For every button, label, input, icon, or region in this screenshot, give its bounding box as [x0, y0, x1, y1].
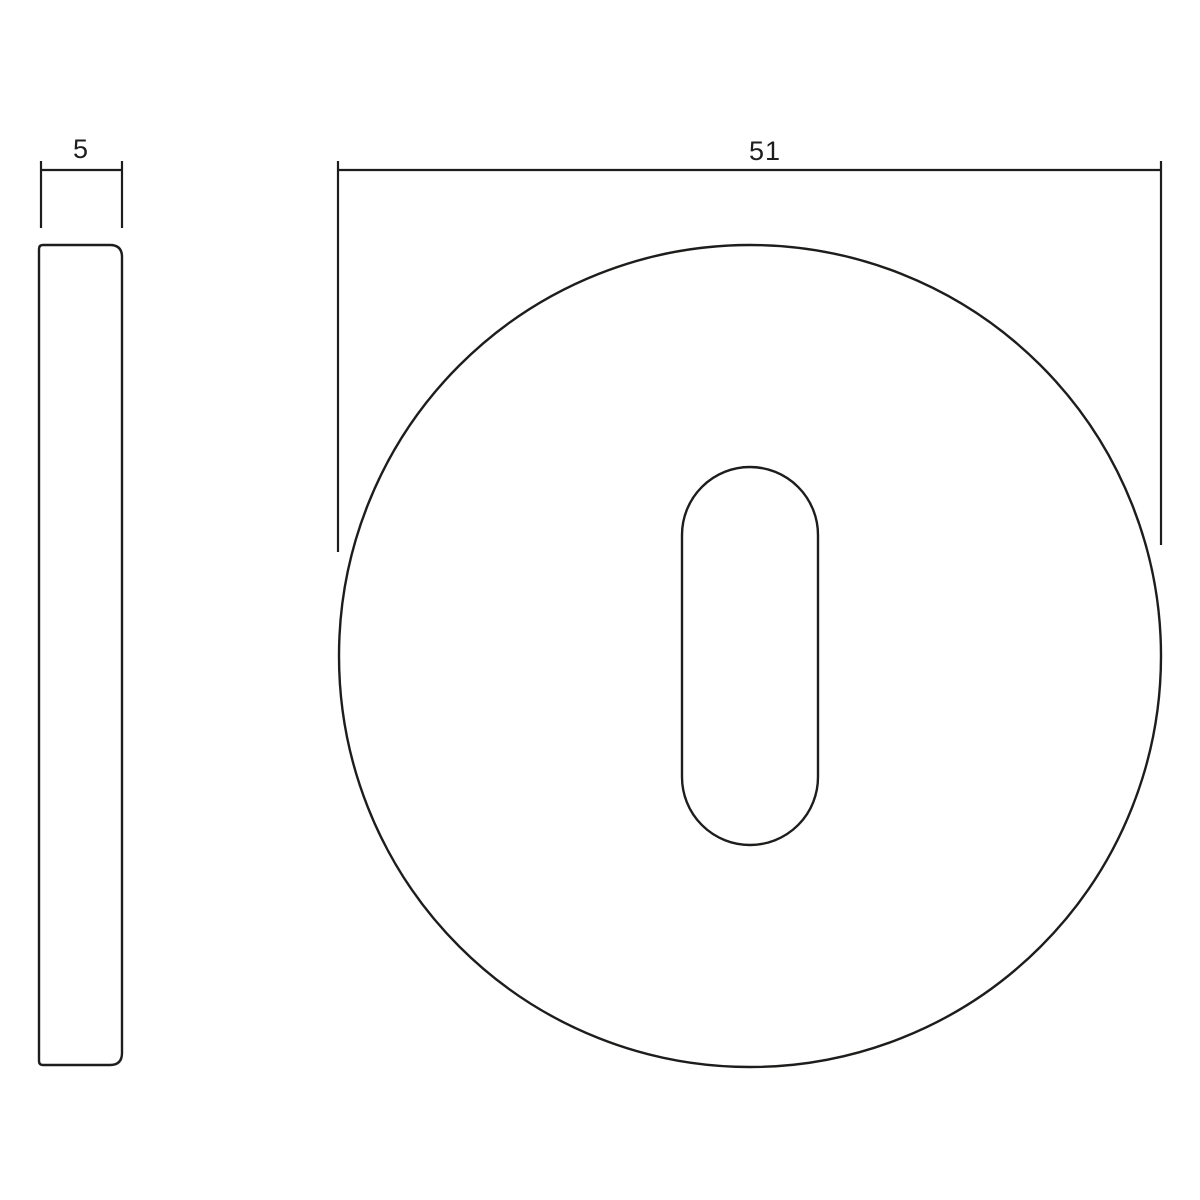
rosette-circle [339, 245, 1161, 1067]
side-view [39, 245, 122, 1065]
dimension-thickness [41, 161, 122, 228]
drawing-canvas: 5 51 [0, 0, 1200, 1200]
technical-drawing: 5 51 [0, 0, 1200, 1200]
side-view-outline [39, 245, 122, 1065]
keyhole-slot [682, 467, 818, 845]
dimension-diameter [338, 161, 1161, 552]
dimension-thickness-label: 5 [73, 134, 89, 164]
dimension-diameter-label: 51 [749, 136, 781, 166]
front-view [339, 245, 1161, 1067]
drawing-lines [39, 161, 1161, 1067]
